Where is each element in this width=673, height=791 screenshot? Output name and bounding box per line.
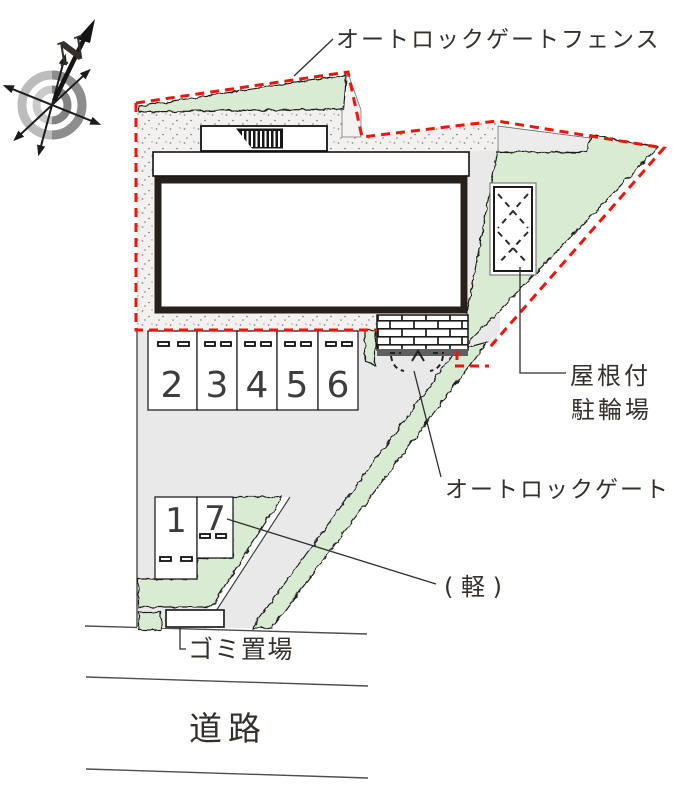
stairs-steps — [243, 131, 279, 147]
garbage-label: ゴミ置場 — [188, 635, 294, 664]
concrete-stipple-under-building — [155, 313, 377, 329]
building-footprint — [158, 180, 464, 310]
stairs — [201, 126, 327, 151]
bicycle-parking — [490, 183, 536, 275]
fence-label: オートロックゲートフェンス — [336, 27, 661, 53]
parking-number-6: 6 — [327, 365, 350, 406]
site-plan: 2 3 4 5 6 1 7 — [0, 0, 673, 791]
parking-number-2: 2 — [161, 365, 184, 406]
parking-row-main: 2 3 4 5 6 — [148, 331, 358, 410]
garbage-area-box — [166, 610, 224, 627]
site-plan-canvas: 2 3 4 5 6 1 7 — [0, 0, 673, 791]
parking-number-5: 5 — [286, 365, 309, 406]
gate-label: オートロックゲート — [445, 477, 670, 503]
bike-label-line2: 駐輪場 — [571, 396, 652, 424]
small-planting-square — [139, 612, 161, 630]
parking-number-7: 7 — [204, 499, 226, 539]
bike-shed-inner — [494, 187, 532, 271]
kei-label: ( 軽 ) — [444, 573, 502, 601]
bike-label-line1: 屋根付 — [570, 362, 651, 390]
parking-number-3: 3 — [206, 365, 229, 406]
parking-number-1: 1 — [165, 501, 187, 541]
brick-wall — [377, 315, 468, 350]
road-label: 道路 — [189, 709, 267, 748]
parking-number-4: 4 — [246, 365, 269, 406]
building-corridor — [153, 152, 469, 176]
hedge-strip-near-wall — [365, 330, 375, 365]
